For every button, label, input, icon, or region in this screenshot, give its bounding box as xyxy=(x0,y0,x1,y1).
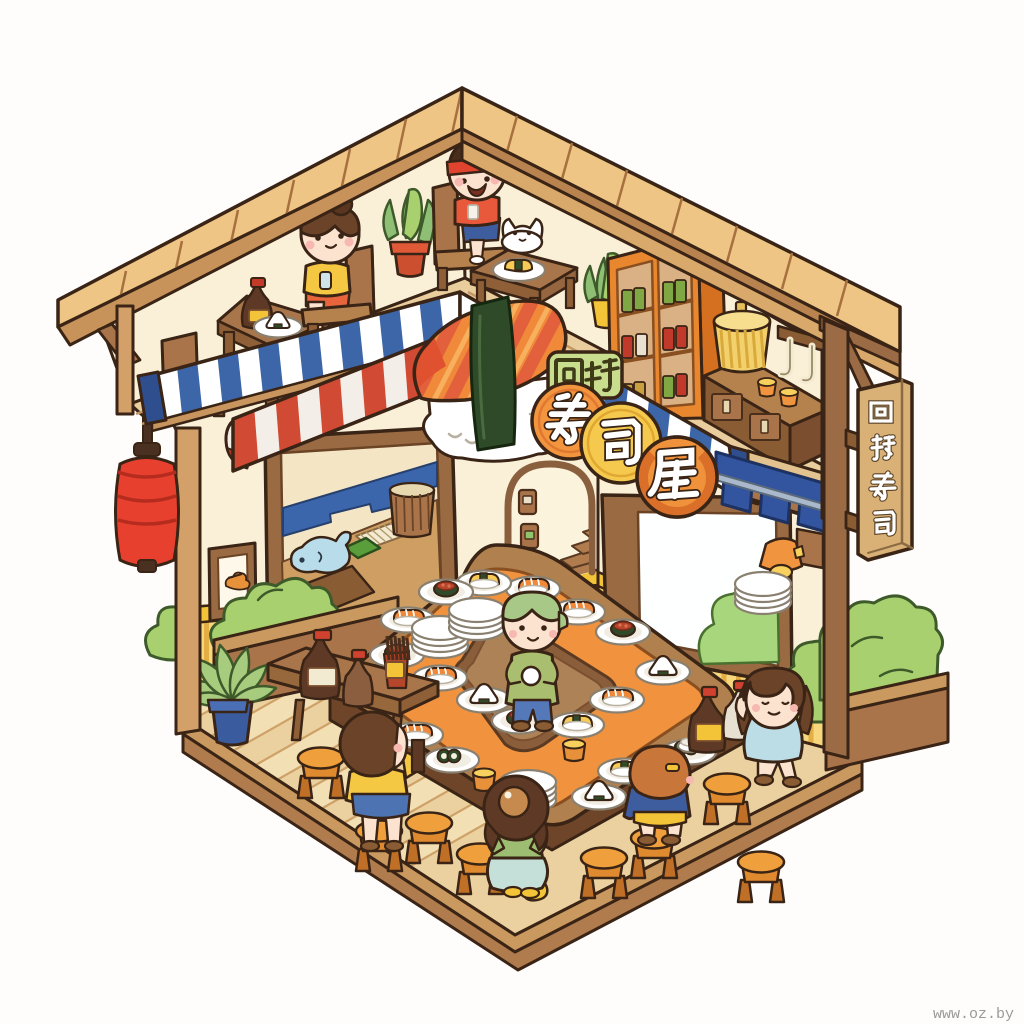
svg-text:www.oz.by: www.oz.by xyxy=(933,1006,1014,1023)
